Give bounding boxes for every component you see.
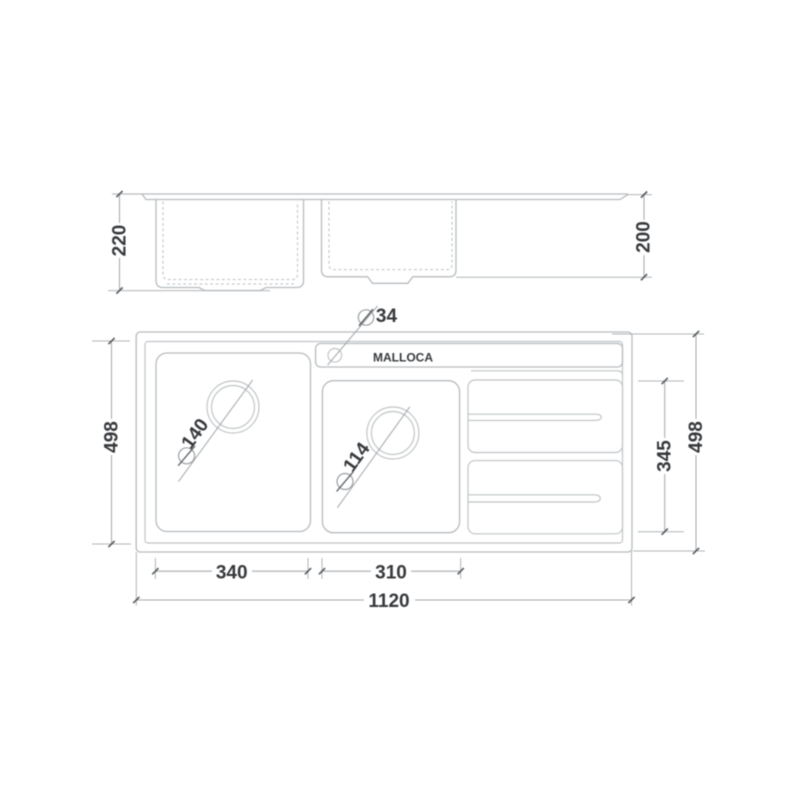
svg-text:310: 310 — [375, 562, 407, 583]
svg-text:498: 498 — [102, 421, 123, 453]
svg-text:220: 220 — [110, 225, 131, 257]
svg-text:345: 345 — [655, 440, 676, 472]
svg-text:MALLOCA: MALLOCA — [373, 351, 433, 365]
svg-text:34: 34 — [376, 306, 398, 327]
svg-text:140: 140 — [178, 415, 214, 453]
svg-text:498: 498 — [686, 421, 707, 453]
svg-text:200: 200 — [634, 221, 655, 253]
svg-text:1120: 1120 — [368, 591, 409, 612]
svg-text:340: 340 — [216, 562, 248, 583]
